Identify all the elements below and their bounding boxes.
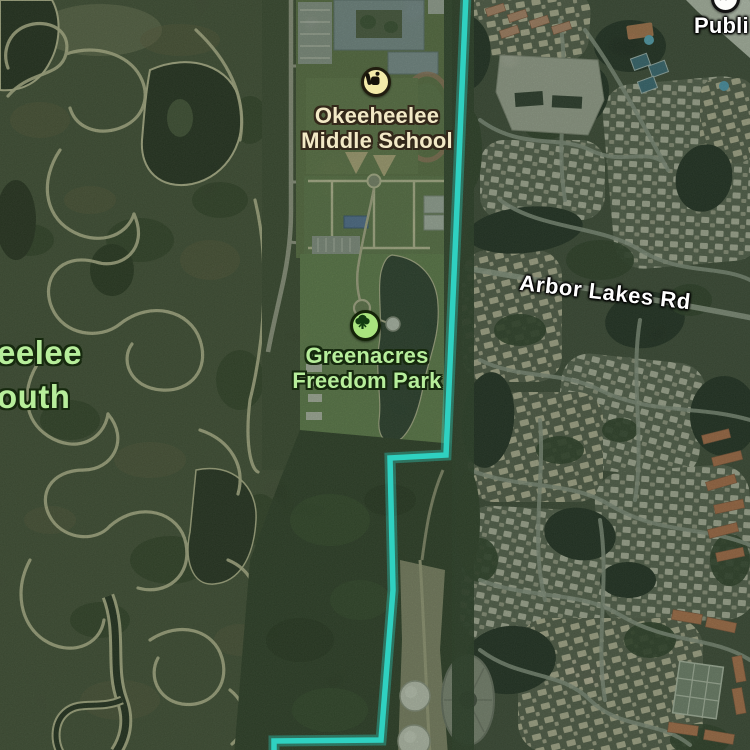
school-label-line2: Middle School [301, 129, 453, 154]
park-poi-label[interactable]: Greenacres Freedom Park [292, 344, 441, 393]
school-label-line1: Okeeheelee [301, 104, 453, 129]
school-poi-label[interactable]: Okeeheelee Middle School [301, 104, 453, 153]
tree-park-icon [353, 313, 372, 332]
park-label-line1: Greenacres [292, 344, 441, 369]
park-poi[interactable] [350, 310, 381, 341]
area-label-okeeheelee-south: eelee outh [0, 331, 82, 419]
area-label-line1: eelee [0, 331, 82, 375]
backpack-school-icon [364, 70, 382, 88]
park-label-line2: Freedom Park [292, 369, 441, 394]
grocery-poi-label[interactable]: Publi [694, 14, 749, 39]
shopping-cart-icon [714, 0, 731, 1]
satellite-map[interactable]: Okeeheelee Middle School Greenacres Free… [0, 0, 750, 750]
area-label-line2: outh [0, 375, 82, 419]
school-poi[interactable] [361, 67, 391, 97]
